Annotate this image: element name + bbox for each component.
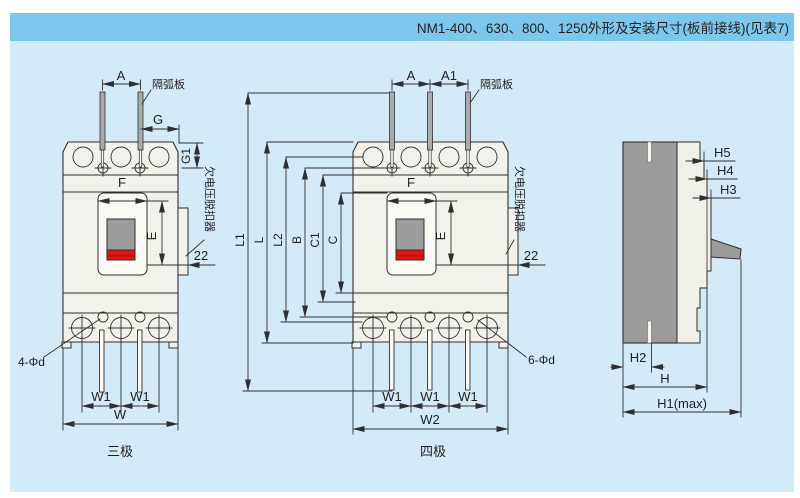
dim-label-h1max: H1(max): [657, 396, 707, 411]
page-title: NM1-400、630、800、1250外形及安装尺寸(板前接线)(见表7): [417, 20, 789, 36]
dim-label-e: E: [433, 231, 448, 240]
arc-barrier: [466, 92, 471, 150]
dim-label-c: C: [326, 235, 340, 244]
handle-red: [396, 250, 424, 260]
arc-barrier: [428, 92, 433, 150]
dim-label-g: G: [153, 112, 163, 127]
stud: [138, 330, 143, 392]
dim-label-w1: W1: [382, 389, 402, 404]
dim-label-w: W: [114, 407, 127, 422]
dim-label-f: F: [118, 175, 126, 190]
stud: [390, 330, 395, 390]
uv-release-label: 欠电压脱扣器: [513, 166, 527, 232]
dim-label-l2: L2: [271, 233, 285, 247]
dim-label-w2: W2: [420, 412, 440, 427]
dim-label-f: F: [407, 175, 415, 190]
foot: [499, 342, 508, 348]
caption-three-pole: 三极: [107, 444, 133, 459]
dim-label-a1: A1: [441, 68, 457, 83]
barrier-slot: [139, 150, 141, 167]
handle-gray: [107, 219, 135, 250]
barrier-slot: [467, 150, 469, 167]
barrier-slot: [101, 150, 103, 167]
catalog-page: NM1-400、630、800、1250外形及安装尺寸(板前接线)(见表7): [0, 0, 800, 498]
stud: [100, 330, 105, 392]
handle-red: [107, 250, 135, 260]
dim-label-w1: W1: [130, 389, 150, 404]
technical-drawing: NM1-400、630、800、1250外形及安装尺寸(板前接线)(见表7): [0, 0, 800, 498]
barrier-slot: [391, 150, 393, 167]
dim-label-h4: H4: [717, 163, 734, 178]
dim-label-e: E: [144, 231, 159, 240]
dim-label-a: A: [117, 68, 126, 83]
stud: [428, 330, 433, 390]
foot: [169, 342, 178, 348]
dim-label-h5: H5: [714, 145, 731, 160]
handle-gray: [396, 219, 424, 250]
side-body-dark: [623, 142, 677, 343]
uv-release-label: 欠电压脱扣器: [203, 166, 217, 232]
arc-plate-label: 隔弧板: [152, 77, 185, 91]
arc-barrier: [390, 92, 395, 150]
stud: [466, 330, 471, 390]
dim-label-g1: G1: [179, 148, 193, 164]
dim-label-l1: L1: [233, 233, 247, 247]
holes-label-4d: 4-Φd: [18, 355, 45, 369]
foot: [62, 342, 71, 348]
dim-label-22: 22: [194, 248, 208, 263]
dim-label-c1: C1: [308, 232, 322, 248]
dim-label-22: 22: [524, 248, 538, 263]
side-slot-bottom: [648, 321, 652, 343]
holes-label-6d: 6-Φd: [528, 353, 555, 367]
dim-label-w1: W1: [91, 389, 111, 404]
arc-barrier: [100, 92, 105, 150]
caption-four-pole: 四极: [420, 444, 446, 459]
dim-label-w1: W1: [420, 389, 440, 404]
arc-barrier: [138, 92, 143, 150]
barrier-slot: [429, 150, 431, 167]
side-slot-top: [648, 142, 652, 162]
arc-plate-label: 隔弧板: [480, 77, 513, 91]
dim-label-l: L: [252, 236, 266, 243]
dim-label-h2: H2: [630, 350, 647, 365]
dim-label-b: B: [290, 236, 304, 244]
dim-label-h: H: [660, 371, 669, 386]
dim-label-a: A: [407, 68, 416, 83]
dim-label-h3: H3: [720, 182, 737, 197]
dim-label-w1: W1: [458, 389, 478, 404]
